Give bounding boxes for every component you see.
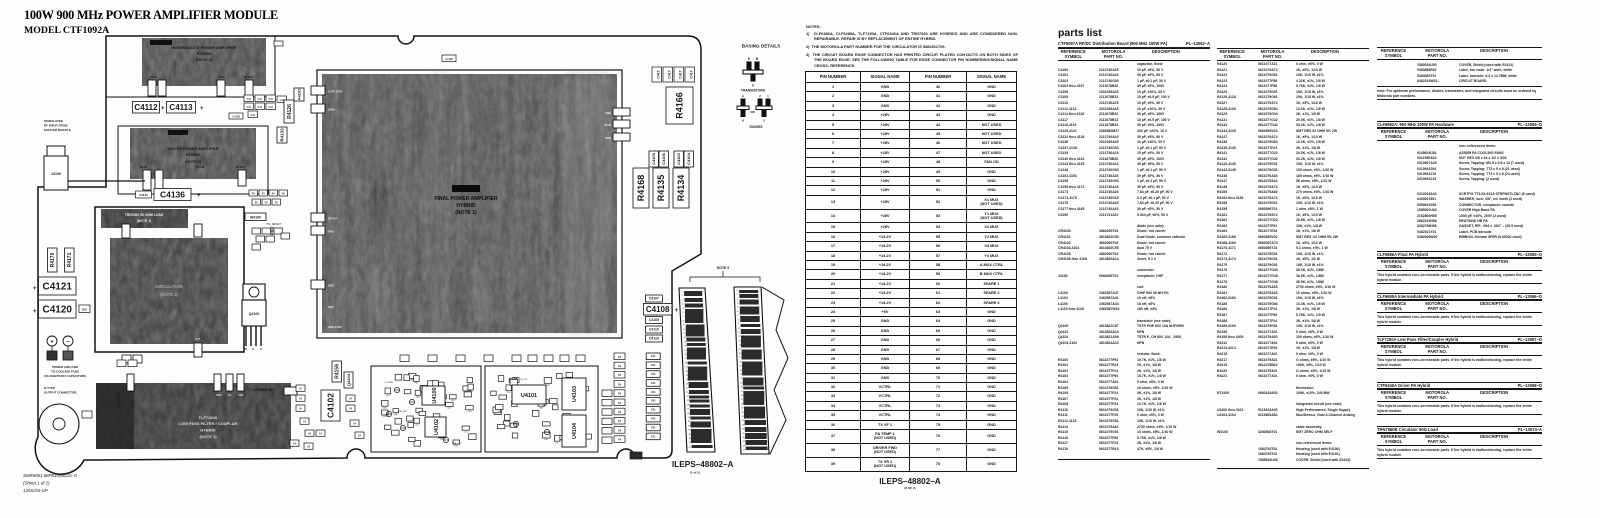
svg-text:HYBRID: HYBRID (197, 52, 212, 56)
svg-text:34: 34 (688, 430, 691, 432)
svg-text:C4120: C4120 (43, 305, 73, 316)
svg-text:R4166: R4166 (675, 92, 685, 119)
svg-text:18: 18 (739, 361, 742, 363)
svg-text:+: + (197, 193, 201, 199)
svg-text:C4107: C4107 (649, 297, 659, 301)
svg-text:SIDE B INV: SIDE B INV (328, 325, 342, 329)
svg-text:C41: C41 (651, 434, 656, 438)
svg-text:CIRCULATOR: CIRCULATOR (155, 284, 182, 289)
svg-text:U4102: U4102 (434, 419, 440, 435)
svg-text:GND: GND (605, 111, 611, 115)
svg-text:N-TYPE: N-TYPE (44, 386, 55, 390)
svg-text:X3 IN: X3 IN (150, 75, 157, 79)
svg-text:C41: C41 (251, 114, 256, 117)
svg-text:R4135: R4135 (656, 175, 666, 202)
svg-text:C4108: C4108 (646, 305, 670, 314)
svg-text:SMR6651 68P8109BE01-O: SMR6651 68P8109BE01-O (23, 473, 78, 478)
svg-text:2: 2 (737, 294, 739, 296)
svg-text:C4116: C4116 (649, 337, 659, 341)
svg-text:VIA FEEDTHRU CAPACITORS: VIA FEEDTHRU CAPACITORS (44, 374, 86, 378)
svg-text:OUTPUT CONNECTOR: OUTPUT CONNECTOR (44, 391, 77, 395)
svg-text:U4103: U4103 (572, 386, 578, 402)
svg-text:Q41: Q41 (386, 395, 391, 397)
svg-text:A4102: A4102 (296, 88, 301, 101)
svg-text:COT: COT (195, 338, 201, 341)
svg-text:26: 26 (687, 396, 690, 398)
svg-text:7: 7 (737, 315, 739, 317)
svg-text:K: K (742, 119, 745, 123)
svg-text:RF OUT: RF OUT (328, 217, 338, 221)
svg-text:R4171: R4171 (67, 252, 73, 267)
svg-text:8: 8 (683, 320, 685, 322)
svg-text:C417: C417 (667, 70, 671, 78)
svg-text:9: 9 (683, 325, 685, 327)
svg-text:C41: C41 (415, 424, 420, 426)
svg-text:LOW PASS FILTER / COUPLAR: LOW PASS FILTER / COUPLAR (179, 421, 238, 426)
svg-text:V_CHRG: V_CHRG (384, 382, 393, 384)
svg-text:27: 27 (687, 400, 690, 402)
svg-text:9: 9 (738, 324, 740, 326)
svg-text:C41: C41 (269, 98, 274, 101)
svg-text:C41: C41 (651, 363, 656, 367)
svg-text:C41: C41 (651, 381, 656, 385)
svg-text:GND: GND (394, 414, 399, 416)
svg-text:POWER AND GND: POWER AND GND (52, 365, 79, 369)
svg-text:RF OUT: RF OUT (244, 75, 254, 79)
svg-text:+: + (675, 308, 679, 314)
svg-text:U4104: U4104 (572, 422, 578, 439)
svg-text:GND: GND (382, 407, 387, 409)
svg-text:GND: GND (328, 230, 334, 234)
svg-text:+: + (33, 286, 37, 292)
svg-text:TP1 IN: TP1 IN (196, 165, 204, 169)
svg-text:C41: C41 (651, 425, 656, 429)
svg-text:TRN7660 50 OHM LOAD: TRN7660 50 OHM LOAD (125, 213, 164, 217)
svg-text:(Sheet 1 of 2): (Sheet 1 of 2) (23, 481, 50, 486)
svg-text:29: 29 (687, 409, 690, 411)
svg-text:29: 29 (741, 408, 744, 410)
svg-text:Y3 IN: Y3 IN (218, 75, 225, 79)
svg-text:1: 1 (681, 291, 683, 293)
svg-text:TRANSISTORS: TRANSISTORS (741, 89, 766, 93)
svg-text:GND: GND (328, 305, 334, 309)
svg-text:E: E (748, 57, 750, 61)
svg-text:C4110: C4110 (649, 328, 659, 332)
svg-text:15: 15 (739, 349, 742, 351)
svg-text:32: 32 (742, 420, 745, 422)
svg-text:4: 4 (737, 303, 739, 305)
svg-text:R4134: R4134 (676, 175, 686, 202)
svg-text:DPA_DET: DPA_DET (452, 442, 463, 445)
svg-text:C4112: C4112 (134, 103, 158, 112)
svg-text:ILEPS–48802–A: ILEPS–48802–A (672, 460, 734, 469)
svg-text:HYBRID: HYBRID (186, 153, 201, 157)
svg-text:R4168: R4168 (636, 175, 646, 202)
svg-text:MODULATED: MODULATED (44, 119, 64, 123)
svg-text:R41: R41 (454, 445, 459, 447)
svg-text:C41: C41 (464, 431, 469, 433)
svg-text:C4113: C4113 (169, 103, 193, 112)
svg-text:32: 32 (688, 421, 691, 423)
svg-text:DIODES: DIODES (750, 125, 764, 129)
svg-text:C4121: C4121 (43, 282, 73, 293)
svg-text:(NOTE 1): (NOTE 1) (137, 219, 152, 223)
svg-text:Q41: Q41 (447, 408, 452, 410)
svg-text:12: 12 (738, 336, 741, 338)
svg-text:C41: C41 (651, 408, 656, 412)
svg-text:C4106: C4106 (661, 152, 666, 165)
svg-text:7: 7 (683, 316, 685, 318)
svg-text:6: 6 (737, 311, 739, 313)
svg-text:C4128: C4128 (445, 57, 453, 61)
svg-text:18: 18 (685, 362, 688, 364)
svg-text:31: 31 (688, 417, 691, 419)
svg-text:Q4104: Q4104 (346, 373, 351, 386)
svg-text:+: + (200, 106, 204, 112)
svg-text:4: 4 (682, 304, 684, 306)
svg-text:24: 24 (740, 387, 743, 389)
svg-text:(NOTE 1): (NOTE 1) (185, 160, 202, 164)
svg-text:R41: R41 (507, 392, 512, 394)
svg-text:C4109: C4109 (649, 318, 659, 322)
svg-text:5: 5 (737, 307, 739, 309)
svg-text:+: + (33, 309, 37, 315)
svg-text:DRIVER POWER AMPLIFIER: DRIVER POWER AMPLIFIER (167, 147, 218, 151)
svg-text:(NOTE 2): (NOTE 2) (160, 292, 179, 297)
svg-text:C41: C41 (651, 417, 656, 421)
svg-text:MODEL CTF1092A: MODEL CTF1092A (24, 25, 109, 36)
svg-text:INTERMEDIATE POWER AMPLIFIER: INTERMEDIATE POWER AMPLIFIER (172, 46, 237, 50)
svg-text:GND: GND (216, 394, 222, 397)
svg-text:C: C (752, 84, 755, 88)
svg-text:A: A (742, 94, 745, 98)
svg-text:C41: C41 (651, 399, 656, 403)
svg-text:R4159: R4159 (335, 364, 341, 379)
svg-text:13: 13 (684, 341, 687, 343)
svg-text:35: 35 (742, 433, 745, 435)
svg-text:38: 38 (743, 445, 746, 447)
svg-text:C41: C41 (258, 106, 263, 109)
svg-text:(NOTE 1): (NOTE 1) (455, 210, 477, 216)
svg-text:RF IN: RF IN (604, 123, 611, 127)
svg-text:TH_VG: TH_VG (520, 379, 528, 381)
svg-text:C4138: C4138 (232, 115, 240, 119)
svg-text:GND: GND (605, 136, 611, 140)
svg-text:C41: C41 (247, 106, 252, 109)
svg-text:U4101: U4101 (521, 393, 537, 399)
svg-text:C4140: C4140 (139, 193, 148, 197)
svg-text:CR4: CR4 (383, 416, 388, 418)
svg-text:22: 22 (740, 378, 743, 380)
svg-text:U4100: U4100 (432, 387, 438, 403)
svg-text:10: 10 (738, 328, 741, 330)
svg-text:B: B (245, 348, 247, 351)
svg-text:EXCITER MODULE: EXCITER MODULE (44, 128, 71, 132)
svg-text:3: 3 (763, 119, 765, 123)
svg-text:23: 23 (686, 383, 689, 385)
svg-text:6: 6 (682, 312, 684, 314)
svg-text:L41: L41 (556, 442, 560, 444)
svg-text:19: 19 (685, 367, 688, 369)
svg-text:C4102: C4102 (326, 393, 336, 418)
svg-text:C41: C41 (247, 98, 252, 101)
svg-text:RF INPUT FROM: RF INPUT FROM (44, 124, 68, 128)
svg-text:TPA_DETECT: TPA_DETECT (266, 223, 282, 226)
svg-text:GATE B INV: GATE B INV (328, 90, 343, 94)
svg-text:OR: OR (750, 110, 755, 114)
svg-text:12/01/03-UP: 12/01/03-UP (23, 488, 48, 493)
svg-text:R26: R26 (82, 308, 87, 312)
svg-text:TO COOLING FANS: TO COOLING FANS (51, 370, 79, 374)
svg-text:GND): GND) (328, 108, 335, 112)
svg-text:−: − (66, 339, 70, 345)
svg-text:+: + (161, 106, 165, 112)
svg-text:RF IN: RF IN (140, 165, 147, 169)
svg-text:R4170: R4170 (50, 252, 56, 267)
svg-text:C417: C417 (656, 70, 660, 78)
svg-text:W4100: W4100 (250, 216, 261, 220)
svg-text:TLF7160A: TLF7160A (198, 415, 217, 420)
svg-text:CR4: CR4 (467, 411, 472, 413)
svg-text:Q4100: Q4100 (249, 312, 260, 316)
svg-text:GND: GND (328, 284, 334, 288)
svg-text:GND: GND (416, 397, 421, 399)
svg-text:GND: GND (539, 407, 544, 409)
svg-text:RF OUT: RF OUT (236, 165, 246, 169)
svg-text:+: + (50, 339, 54, 345)
svg-text:C4136: C4136 (160, 190, 185, 200)
svg-text:E: E (260, 348, 262, 351)
svg-text:R4133: R4133 (280, 128, 285, 142)
svg-text:GND: GND (238, 394, 244, 397)
svg-text:25: 25 (741, 391, 744, 393)
svg-text:RF: RF (228, 394, 232, 397)
svg-text:34: 34 (742, 429, 745, 431)
svg-text:2: 2 (759, 94, 761, 98)
svg-text:Q41: Q41 (546, 385, 551, 387)
svg-text:(NOTE 1): (NOTE 1) (199, 434, 217, 439)
svg-text:25: 25 (686, 392, 689, 394)
svg-text:5: 5 (682, 308, 684, 310)
svg-text:R41: R41 (415, 383, 420, 385)
svg-text:C41: C41 (269, 106, 274, 109)
svg-text:C417: C417 (678, 70, 682, 78)
svg-text:R4126: R4126 (287, 104, 293, 119)
svg-text:37: 37 (743, 441, 746, 443)
svg-text:3: 3 (682, 299, 684, 301)
svg-text:R41: R41 (451, 400, 456, 402)
svg-text:R41: R41 (544, 439, 549, 441)
svg-text:C4104: C4104 (686, 152, 691, 165)
svg-text:B: B (756, 57, 759, 61)
svg-text:C41: C41 (651, 390, 656, 394)
svg-text:8: 8 (738, 319, 740, 321)
svg-text:FINAL POWER AMPLIFIER: FINAL POWER AMPLIFIER (434, 196, 497, 202)
svg-text:C4105: C4105 (651, 152, 656, 165)
svg-text:BASING DETAILS: BASING DETAILS (742, 44, 780, 49)
svg-text:C41: C41 (651, 354, 656, 358)
svg-text:100W 900 MHz POWER AMPLIFIER M: 100W 900 MHz POWER AMPLIFIER MODULE (24, 8, 278, 22)
svg-text:(NOTE 1): (NOTE 1) (196, 58, 213, 62)
svg-text:IPA_DET: IPA_DET (398, 410, 408, 413)
svg-text:C417: C417 (689, 70, 693, 78)
svg-text:G: G (252, 348, 254, 351)
svg-text:HYBRID: HYBRID (200, 428, 215, 433)
svg-text:12: 12 (684, 337, 687, 339)
svg-text:TX POWER ADJ.: TX POWER ADJ. (250, 388, 275, 392)
svg-text:C4103: C4103 (676, 152, 681, 165)
svg-text:C41: C41 (258, 98, 263, 101)
svg-text:1: 1 (736, 290, 738, 292)
svg-text:28: 28 (687, 404, 690, 406)
svg-text:(1 of 2): (1 of 2) (690, 471, 700, 475)
svg-text:2: 2 (682, 295, 684, 297)
svg-text:11: 11 (738, 332, 741, 334)
svg-text:J4100: J4100 (51, 172, 61, 176)
svg-text:3: 3 (737, 298, 739, 300)
svg-text:38: 38 (689, 446, 692, 448)
svg-text:1: 1 (767, 94, 769, 98)
svg-text:GND: GND (543, 405, 548, 407)
svg-text:NOTE 9: NOTE 9 (717, 266, 729, 270)
svg-text:C41: C41 (651, 372, 656, 376)
svg-text:HYBRID: HYBRID (456, 203, 476, 209)
